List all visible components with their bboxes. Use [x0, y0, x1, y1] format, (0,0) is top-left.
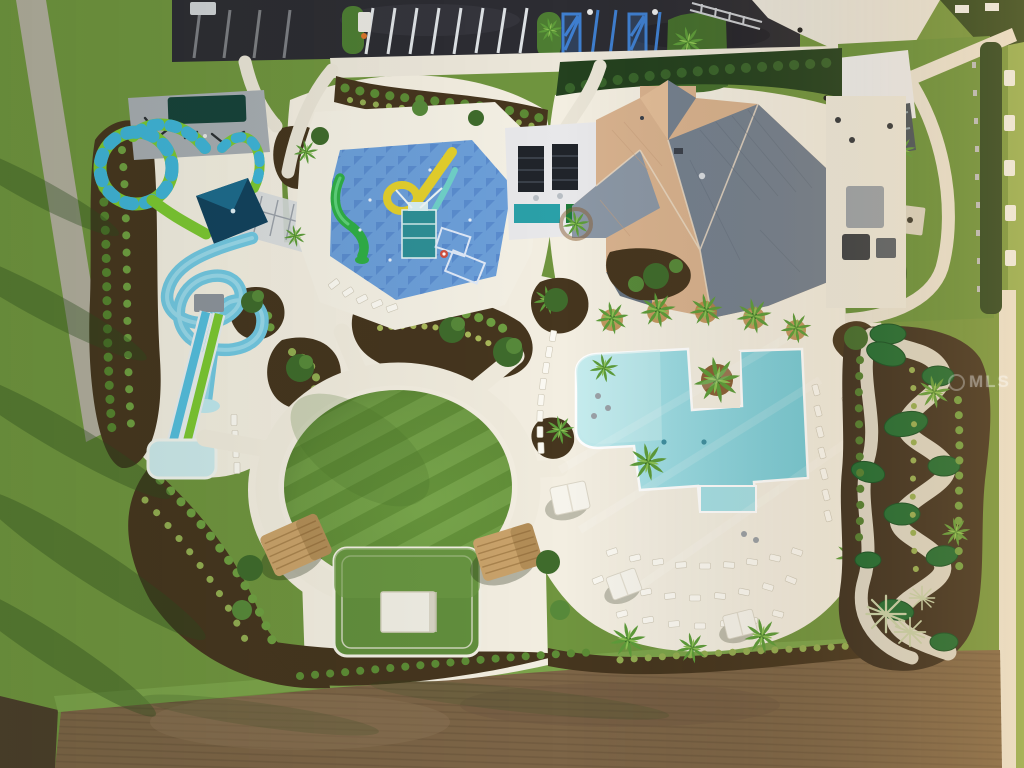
- aerial-scene: [0, 0, 1024, 768]
- aerial-photo-amenity-center: MLS: [0, 0, 1024, 768]
- warm-light-overlay: [0, 0, 1024, 768]
